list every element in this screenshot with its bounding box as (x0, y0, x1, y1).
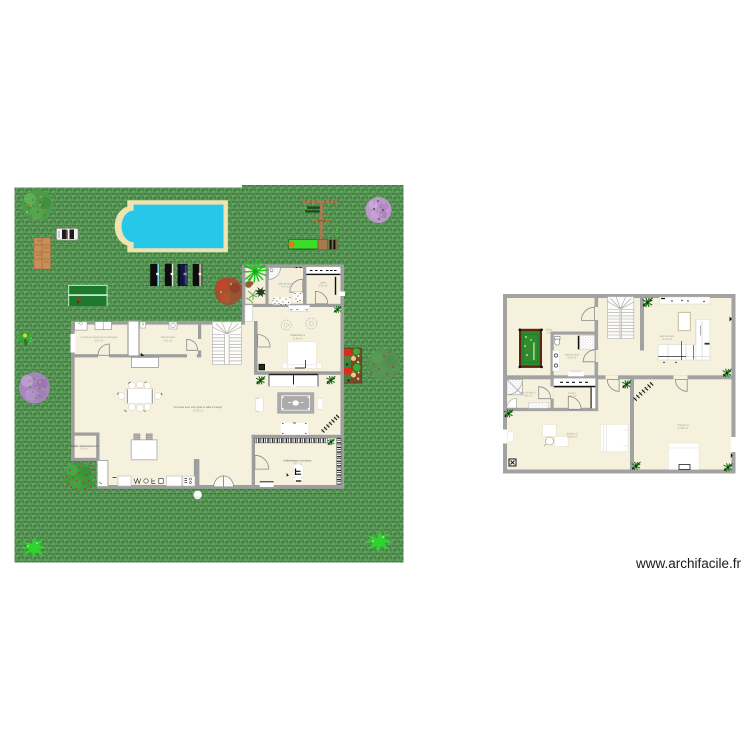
svg-text:www.archifacile.fr: www.archifacile.fr (635, 556, 742, 571)
svg-text:5.53 m2: 5.53 m2 (568, 357, 577, 360)
svg-text:6.62 m2: 6.62 m2 (95, 339, 104, 342)
svg-text:12.08 m2: 12.08 m2 (293, 338, 304, 341)
svg-text:15.86 m2: 15.86 m2 (567, 436, 578, 439)
svg-text:3.92 m2: 3.92 m2 (319, 285, 328, 288)
svg-text:9.47 m2: 9.47 m2 (293, 463, 302, 466)
svg-text:11.04 m2: 11.04 m2 (662, 338, 672, 341)
svg-text:4.55 m2: 4.55 m2 (524, 395, 533, 398)
svg-text:4.17 m2: 4.17 m2 (281, 286, 290, 289)
svg-text:Chambre 1: Chambre 1 (290, 333, 305, 337)
svg-text:6.31 m2: 6.31 m2 (164, 339, 173, 342)
svg-text:21.68 m2: 21.68 m2 (678, 427, 689, 430)
svg-text:1.43 m2: 1.43 m2 (80, 448, 89, 451)
svg-text:1.62: 1.62 (547, 332, 552, 335)
svg-text:57.65 m2: 57.65 m2 (193, 409, 204, 412)
